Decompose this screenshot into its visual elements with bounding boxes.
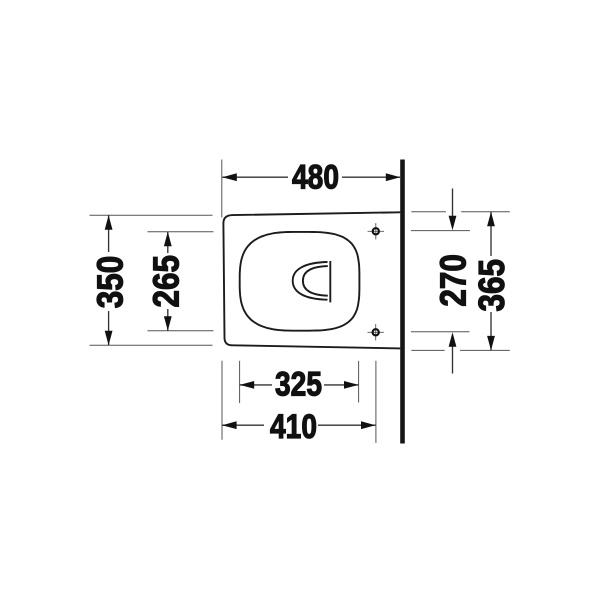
svg-text:410: 410 (270, 408, 317, 446)
svg-text:270: 270 (433, 254, 474, 307)
svg-text:350: 350 (90, 256, 131, 309)
svg-text:365: 365 (472, 259, 513, 312)
svg-text:325: 325 (275, 365, 322, 403)
svg-text:480: 480 (292, 158, 339, 196)
svg-text:265: 265 (146, 255, 187, 308)
